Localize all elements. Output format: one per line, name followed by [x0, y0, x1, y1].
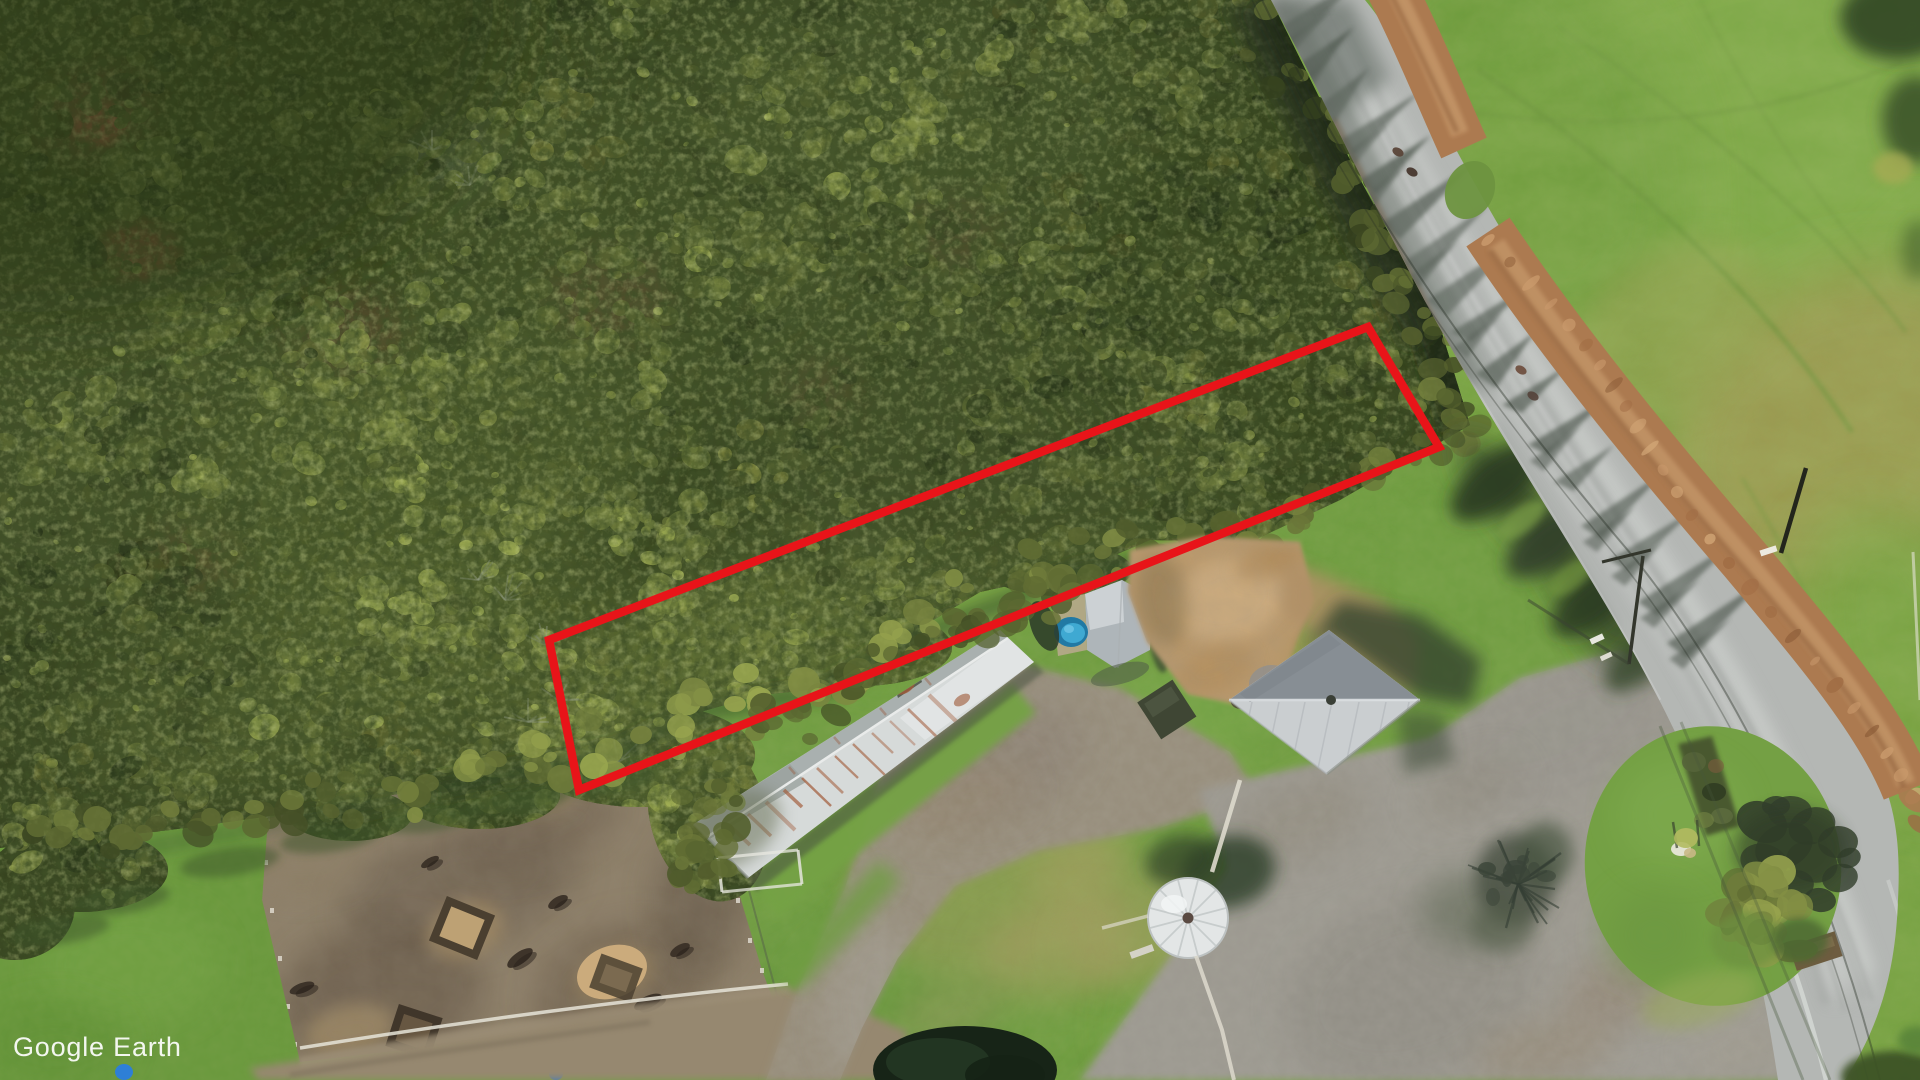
svg-text:Google Earth: Google Earth	[13, 1032, 182, 1062]
